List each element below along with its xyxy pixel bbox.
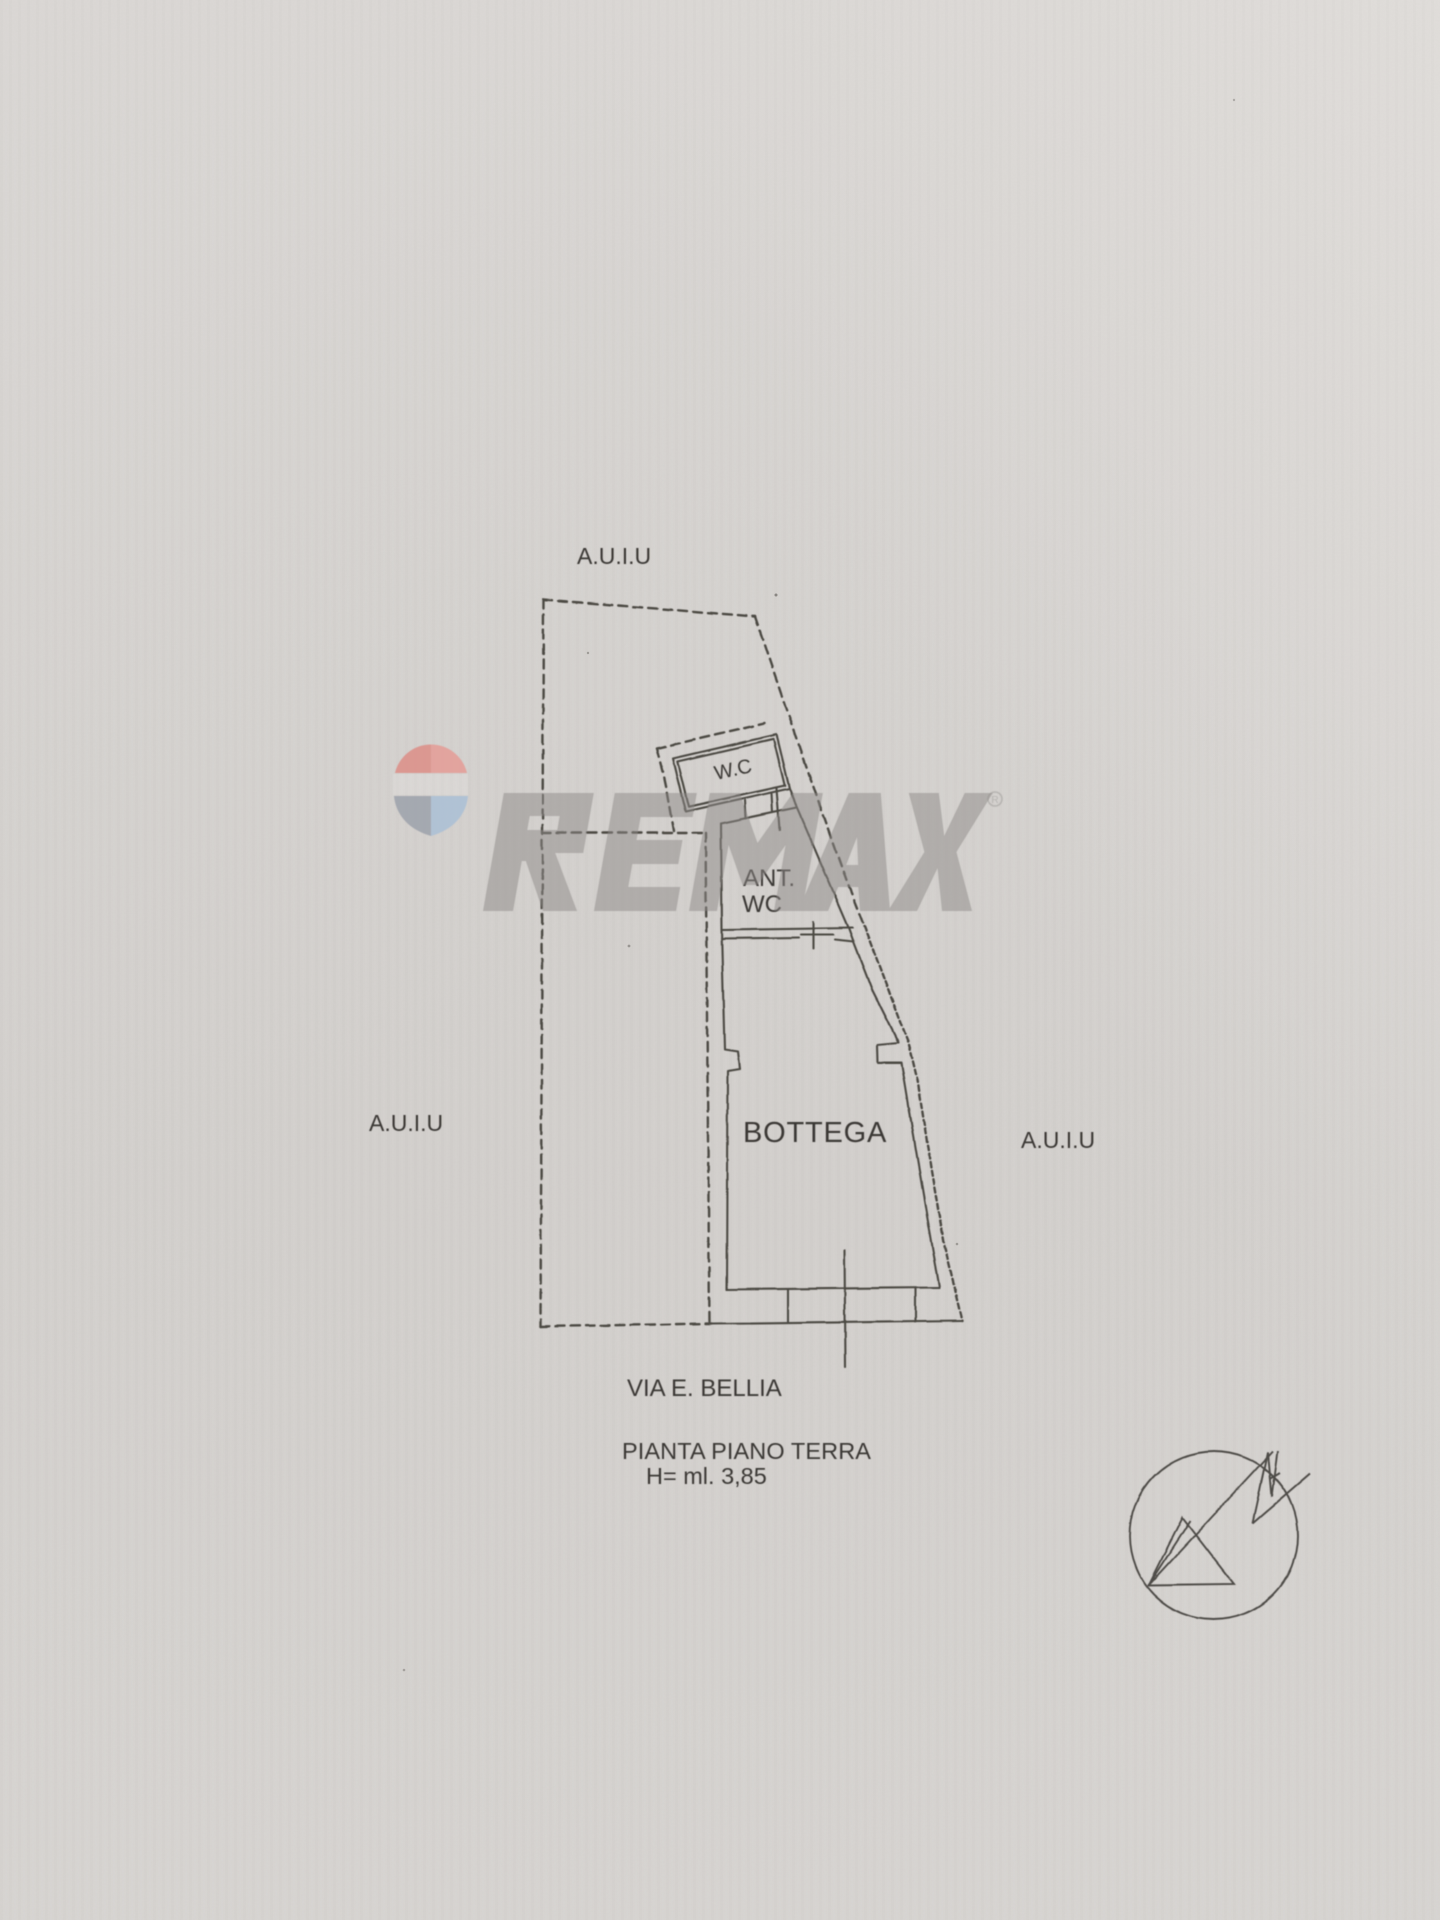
svg-text:BOTTEGA: BOTTEGA: [743, 1117, 887, 1149]
svg-text:A.U.I.U: A.U.I.U: [369, 1110, 443, 1136]
svg-text:A.U.I.U: A.U.I.U: [1021, 1127, 1095, 1153]
svg-text:H= ml. 3,85: H= ml. 3,85: [646, 1463, 767, 1489]
svg-text:R: R: [991, 795, 998, 806]
svg-text:VIA E. BELLIA: VIA E. BELLIA: [627, 1375, 782, 1402]
svg-text:A.U.I.U: A.U.I.U: [577, 543, 651, 569]
svg-text:PIANTA PIANO TERRA: PIANTA PIANO TERRA: [622, 1438, 871, 1464]
